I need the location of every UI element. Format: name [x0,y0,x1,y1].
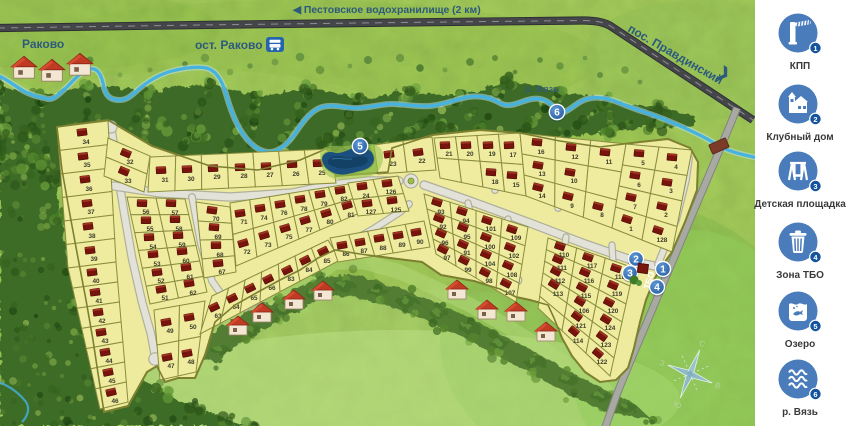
svg-text:120: 120 [608,308,619,315]
svg-text:76: 76 [280,210,288,217]
svg-text:62: 62 [189,290,197,297]
svg-text:21: 21 [445,151,453,158]
svg-text:72: 72 [243,249,251,256]
svg-text:128: 128 [657,237,668,244]
svg-text:57: 57 [171,210,179,217]
svg-text:56: 56 [142,209,150,216]
svg-text:110: 110 [559,252,570,259]
svg-text:37: 37 [87,209,95,216]
svg-text:35: 35 [83,162,91,169]
svg-text:23: 23 [389,161,397,168]
svg-text:127: 127 [366,209,377,216]
svg-text:48: 48 [187,359,195,366]
svg-text:4: 4 [654,282,660,293]
svg-text:7: 7 [633,204,637,211]
svg-text:29: 29 [213,174,221,181]
svg-text:90: 90 [416,239,424,246]
svg-text:18: 18 [491,179,499,186]
svg-text:70: 70 [212,216,220,223]
svg-text:8: 8 [600,212,604,219]
svg-text:16: 16 [537,149,545,156]
svg-text:12: 12 [571,154,579,161]
svg-text:71: 71 [240,219,248,226]
svg-text:р. Вязь: р. Вязь [525,84,559,95]
svg-text:3: 3 [669,188,673,195]
svg-text:68: 68 [216,252,224,259]
svg-text:81: 81 [347,212,355,219]
svg-text:17: 17 [509,152,517,159]
svg-text:5: 5 [357,141,363,152]
svg-text:9: 9 [570,203,574,210]
svg-text:117: 117 [587,263,598,270]
svg-text:1: 1 [629,226,633,233]
svg-text:34: 34 [82,139,90,146]
svg-text:52: 52 [157,278,165,285]
svg-text:73: 73 [264,242,272,249]
svg-text:89: 89 [398,242,406,249]
svg-text:114: 114 [573,338,584,345]
svg-text:24: 24 [362,193,370,200]
svg-text:112: 112 [555,278,566,285]
svg-text:43: 43 [101,338,109,345]
svg-text:38: 38 [88,233,96,240]
svg-text:44: 44 [105,358,113,365]
svg-text:33: 33 [124,178,132,185]
svg-text:104: 104 [485,261,496,268]
svg-text:74: 74 [260,215,268,222]
svg-text:109: 109 [511,235,522,242]
svg-text:20: 20 [466,151,474,158]
svg-text:46: 46 [111,398,119,405]
svg-text:Детская площадка: Детская площадка [754,199,846,210]
svg-text:45: 45 [108,378,116,385]
svg-text:99: 99 [464,267,472,274]
svg-text:10: 10 [570,178,578,185]
svg-text:5: 5 [813,322,817,331]
svg-text:6: 6 [637,182,641,189]
svg-text:3: 3 [813,182,817,191]
svg-text:55: 55 [146,226,154,233]
svg-text:6: 6 [813,390,817,399]
svg-text:54: 54 [149,244,157,251]
svg-text:19: 19 [488,151,496,158]
svg-text:Раково: Раково [22,37,64,51]
svg-text:41: 41 [95,298,103,305]
svg-text:119: 119 [612,291,623,298]
svg-text:5: 5 [641,160,645,167]
svg-text:96: 96 [441,240,449,247]
svg-text:50: 50 [189,324,197,331]
svg-text:15: 15 [512,182,520,189]
svg-text:126: 126 [386,189,397,196]
svg-text:78: 78 [300,206,308,213]
svg-text:2: 2 [813,115,817,124]
svg-text:124: 124 [605,325,616,332]
svg-text:Клубный дом: Клубный дом [766,131,833,143]
svg-text:125: 125 [391,207,402,214]
svg-text:92: 92 [439,224,447,231]
svg-text:79: 79 [320,201,328,208]
svg-text:13: 13 [538,171,546,178]
svg-text:53: 53 [153,261,161,268]
svg-text:47: 47 [167,363,175,370]
svg-text:42: 42 [98,318,106,325]
svg-text:75: 75 [285,234,293,241]
svg-text:КПП: КПП [790,61,810,72]
svg-text:83: 83 [287,276,295,283]
svg-text:60: 60 [182,258,190,265]
svg-text:91: 91 [463,250,471,257]
svg-text:80: 80 [326,219,334,226]
svg-text:39: 39 [90,256,98,263]
svg-text:27: 27 [266,172,274,179]
svg-text:30: 30 [187,176,195,183]
svg-text:61: 61 [186,274,194,281]
svg-text:106: 106 [579,308,590,315]
svg-text:59: 59 [178,242,186,249]
svg-text:1: 1 [813,44,817,53]
svg-text:ост. Раково: ост. Раково [195,38,263,52]
svg-text:100: 100 [485,244,496,251]
svg-text:108: 108 [507,272,518,279]
svg-text:122: 122 [597,359,608,366]
svg-text:69: 69 [214,234,222,241]
svg-text:◀ Пестовское водохранилище (2: ◀ Пестовское водохранилище (2 км) [292,5,481,16]
svg-text:116: 116 [584,278,595,285]
svg-text:1: 1 [660,264,666,275]
svg-text:31: 31 [161,177,169,184]
svg-text:98: 98 [485,278,493,285]
svg-text:11: 11 [606,159,613,166]
svg-text:88: 88 [379,245,387,252]
svg-text:р. Вязь: р. Вязь [782,407,818,418]
svg-text:77: 77 [305,227,313,234]
svg-text:121: 121 [576,323,587,330]
svg-text:97: 97 [443,255,451,262]
svg-text:58: 58 [175,226,183,233]
svg-text:2: 2 [664,212,668,219]
svg-text:28: 28 [240,173,248,180]
svg-text:101: 101 [486,226,497,233]
svg-text:14: 14 [538,193,546,200]
svg-text:Зона ТБО: Зона ТБО [776,270,824,281]
svg-text:85: 85 [323,258,331,265]
svg-text:84: 84 [305,267,313,274]
svg-text:111: 111 [557,265,567,272]
svg-text:40: 40 [92,278,100,285]
svg-text:49: 49 [166,328,174,335]
svg-text:36: 36 [85,186,93,193]
svg-text:22: 22 [418,158,426,165]
svg-text:113: 113 [553,291,564,298]
svg-text:115: 115 [581,293,592,300]
svg-text:32: 32 [126,159,134,166]
svg-text:Озеро: Озеро [785,339,815,350]
svg-text:51: 51 [161,295,169,302]
svg-text:82: 82 [340,196,348,203]
svg-text:102: 102 [509,253,520,260]
svg-text:95: 95 [463,234,471,241]
svg-text:94: 94 [462,218,470,225]
svg-text:67: 67 [218,269,226,276]
svg-text:26: 26 [292,171,300,178]
svg-text:93: 93 [437,209,445,216]
svg-text:4: 4 [674,164,678,171]
svg-text:123: 123 [601,342,612,349]
svg-text:6: 6 [554,107,560,118]
